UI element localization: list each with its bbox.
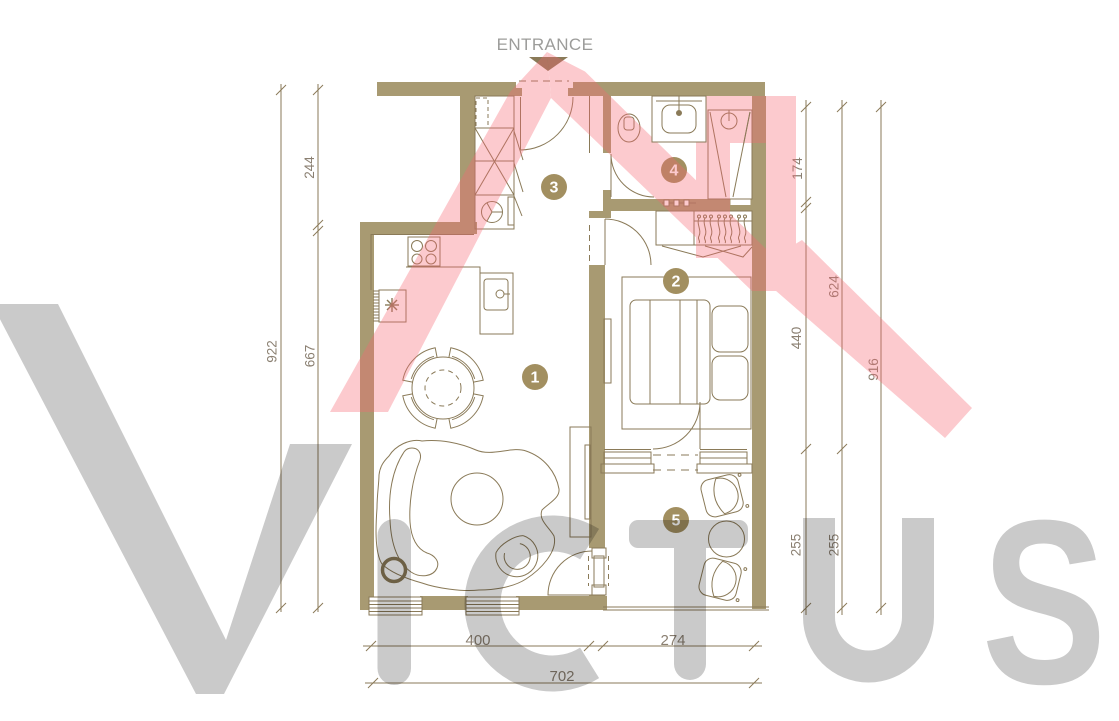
svg-text:667: 667 [303,345,318,368]
svg-text:3: 3 [550,180,559,197]
svg-text:922: 922 [265,340,280,363]
svg-text:440: 440 [789,327,804,350]
svg-text:S: S [982,471,1107,721]
svg-text:244: 244 [302,156,317,179]
svg-text:255: 255 [789,534,804,557]
svg-text:2: 2 [672,274,681,291]
svg-text:ENTRANCE: ENTRANCE [497,35,594,54]
svg-text:1: 1 [531,370,540,387]
